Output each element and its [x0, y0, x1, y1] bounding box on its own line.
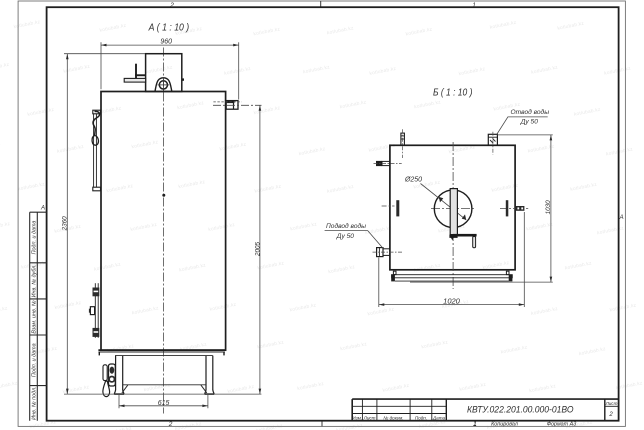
svg-text:Взам. инв. №: Взам. инв. № — [31, 300, 37, 334]
svg-text:kotlubab.kz: kotlubab.kz — [298, 146, 326, 157]
svg-text:kotlubab.kz: kotlubab.kz — [219, 141, 247, 152]
svg-text:kotlubab.kz: kotlubab.kz — [0, 62, 10, 73]
svg-text:kotlubab.kz: kotlubab.kz — [531, 306, 559, 317]
svg-text:kotlubab.kz: kotlubab.kz — [489, 20, 517, 31]
svg-text:А: А — [40, 206, 45, 212]
svg-text:2005: 2005 — [254, 242, 261, 258]
svg-text:kotlubab.kz: kotlubab.kz — [297, 381, 325, 392]
svg-text:kotlubab.kz: kotlubab.kz — [459, 382, 487, 393]
svg-text:kotlubab.kz: kotlubab.kz — [179, 262, 207, 273]
svg-text:kotlubab.kz: kotlubab.kz — [94, 262, 122, 273]
svg-text:kotlubab.kz: kotlubab.kz — [132, 305, 160, 316]
svg-text:kotlubab.kz: kotlubab.kz — [27, 107, 55, 118]
svg-text:kotlubab.kz: kotlubab.kz — [365, 225, 393, 236]
svg-text:2: 2 — [608, 412, 613, 418]
svg-text:Копировал: Копировал — [491, 421, 518, 427]
svg-text:kotlubab.kz: kotlubab.kz — [253, 105, 281, 116]
svg-text:kotlubab.kz: kotlubab.kz — [208, 222, 236, 233]
svg-text:kotlubab.kz: kotlubab.kz — [227, 384, 255, 395]
svg-text:kotlubab.kz: kotlubab.kz — [368, 143, 396, 154]
svg-text:615: 615 — [158, 400, 170, 407]
svg-text:2: 2 — [168, 421, 173, 428]
svg-text:kotlubab.kz: kotlubab.kz — [254, 183, 282, 194]
svg-text:960: 960 — [160, 39, 172, 46]
svg-text:Инв. № подл.: Инв. № подл. — [31, 386, 37, 419]
svg-text:kotlubab.kz: kotlubab.kz — [290, 221, 318, 232]
svg-text:Дата: Дата — [432, 415, 446, 420]
svg-text:kotlubab.kz: kotlubab.kz — [579, 346, 607, 357]
svg-text:kotlubab.kz: kotlubab.kz — [130, 222, 158, 233]
svg-text:kotlubab.kz: kotlubab.kz — [570, 182, 598, 193]
svg-text:Подп. и дата: Подп. и дата — [31, 343, 37, 377]
svg-text:Ду 50: Ду 50 — [336, 233, 355, 240]
svg-text:Изм.: Изм. — [352, 415, 362, 420]
svg-text:kotlubab.kz: kotlubab.kz — [382, 383, 410, 394]
svg-text:kotlubab.kz: kotlubab.kz — [339, 99, 367, 110]
svg-text:kotlubab.kz: kotlubab.kz — [458, 66, 486, 77]
svg-text:kotlubab.kz: kotlubab.kz — [145, 64, 173, 75]
svg-text:1: 1 — [473, 422, 476, 428]
svg-text:kotlubab.kz: kotlubab.kz — [531, 65, 559, 76]
svg-text:А: А — [619, 215, 624, 221]
svg-text:kotlubab.kz: kotlubab.kz — [289, 302, 317, 313]
svg-text:kotlubab.kz: kotlubab.kz — [0, 140, 1, 151]
svg-text:Лист: Лист — [363, 415, 376, 420]
svg-text:kotlubab.kz: kotlubab.kz — [57, 144, 85, 155]
svg-text:kotlubab.kz: kotlubab.kz — [224, 66, 252, 77]
svg-text:1030: 1030 — [545, 200, 552, 215]
svg-text:kotlubab.kz: kotlubab.kz — [606, 146, 634, 157]
svg-text:Отвод воды: Отвод воды — [511, 108, 550, 116]
svg-text:kotlubab.kz: kotlubab.kz — [99, 23, 127, 34]
svg-text:kotlubab.kz: kotlubab.kz — [131, 139, 159, 150]
svg-text:kotlubab.kz: kotlubab.kz — [526, 221, 554, 232]
svg-text:kotlubab.kz: kotlubab.kz — [0, 305, 8, 316]
svg-text:kotlubab.kz: kotlubab.kz — [340, 341, 368, 352]
svg-text:1020: 1020 — [443, 296, 461, 305]
svg-text:kotlubab.kz: kotlubab.kz — [414, 99, 442, 110]
svg-text:kotlubab.kz: kotlubab.kz — [257, 339, 285, 350]
svg-text:kotlubab.kz: kotlubab.kz — [615, 380, 643, 391]
svg-text:kotlubab.kz: kotlubab.kz — [328, 264, 356, 275]
svg-text:kotlubab.kz: kotlubab.kz — [421, 339, 449, 350]
svg-text:kotlubab.kz: kotlubab.kz — [178, 179, 206, 190]
svg-text:А ( 1 : 10 ): А ( 1 : 10 ) — [148, 23, 189, 34]
svg-text:kotlubab.kz: kotlubab.kz — [18, 181, 46, 192]
svg-text:kotlubab.kz: kotlubab.kz — [143, 382, 171, 393]
svg-text:kotlubab.kz: kotlubab.kz — [253, 26, 281, 37]
svg-text:kotlubab.kz: kotlubab.kz — [597, 225, 625, 236]
svg-text:kotlubab.kz: kotlubab.kz — [177, 100, 205, 111]
svg-text:kotlubab.kz: kotlubab.kz — [405, 26, 433, 37]
svg-text:kotlubab.kz: kotlubab.kz — [557, 21, 585, 32]
svg-text:kotlubab.kz: kotlubab.kz — [257, 260, 285, 271]
svg-text:Лист: Лист — [605, 401, 618, 406]
svg-text:kotlubab.kz: kotlubab.kz — [609, 302, 637, 313]
svg-text:kotlubab.kz: kotlubab.kz — [106, 183, 134, 194]
svg-text:kotlubab.kz: kotlubab.kz — [0, 221, 11, 232]
svg-text:kotlubab.kz: kotlubab.kz — [54, 300, 82, 311]
svg-text:kotlubab.kz: kotlubab.kz — [94, 105, 122, 116]
svg-text:Подвод воды: Подвод воды — [326, 222, 366, 230]
svg-text:№ докум.: № докум. — [383, 415, 403, 420]
svg-text:Ду 50: Ду 50 — [520, 118, 539, 125]
svg-text:kotlubab.kz: kotlubab.kz — [369, 66, 397, 77]
svg-text:Б ( 1 : 10 ): Б ( 1 : 10 ) — [433, 87, 472, 98]
svg-text:kotlubab.kz: kotlubab.kz — [174, 421, 202, 430]
svg-text:Формат А3: Формат А3 — [547, 421, 577, 427]
svg-text:kotlubab.kz: kotlubab.kz — [367, 306, 395, 317]
svg-text:Подп.: Подп. — [415, 415, 427, 420]
svg-text:kotlubab.kz: kotlubab.kz — [303, 64, 331, 75]
svg-text:kotlubab.kz: kotlubab.kz — [573, 107, 601, 118]
svg-text:Ø250: Ø250 — [404, 177, 422, 184]
svg-text:2360: 2360 — [61, 216, 68, 232]
svg-text:Подп. и дата: Подп. и дата — [31, 221, 37, 255]
svg-text:kotlubab.kz: kotlubab.kz — [327, 25, 355, 36]
svg-text:kotlubab.kz: kotlubab.kz — [327, 184, 355, 195]
svg-text:kotlubab.kz: kotlubab.kz — [13, 19, 41, 30]
svg-text:kotlubab.kz: kotlubab.kz — [414, 262, 442, 273]
svg-text:kotlubab.kz: kotlubab.kz — [565, 260, 593, 271]
svg-text:kotlubab.kz: kotlubab.kz — [500, 344, 528, 355]
svg-text:kotlubab.kz: kotlubab.kz — [529, 383, 557, 394]
svg-text:kotlubab.kz: kotlubab.kz — [0, 380, 18, 391]
svg-text:kotlubab.kz: kotlubab.kz — [209, 302, 237, 313]
svg-text:КВТУ.022.201.00.000-01ВО: КВТУ.022.201.00.000-01ВО — [467, 405, 574, 416]
svg-text:Инв. № дубл.: Инв. № дубл. — [31, 264, 37, 297]
